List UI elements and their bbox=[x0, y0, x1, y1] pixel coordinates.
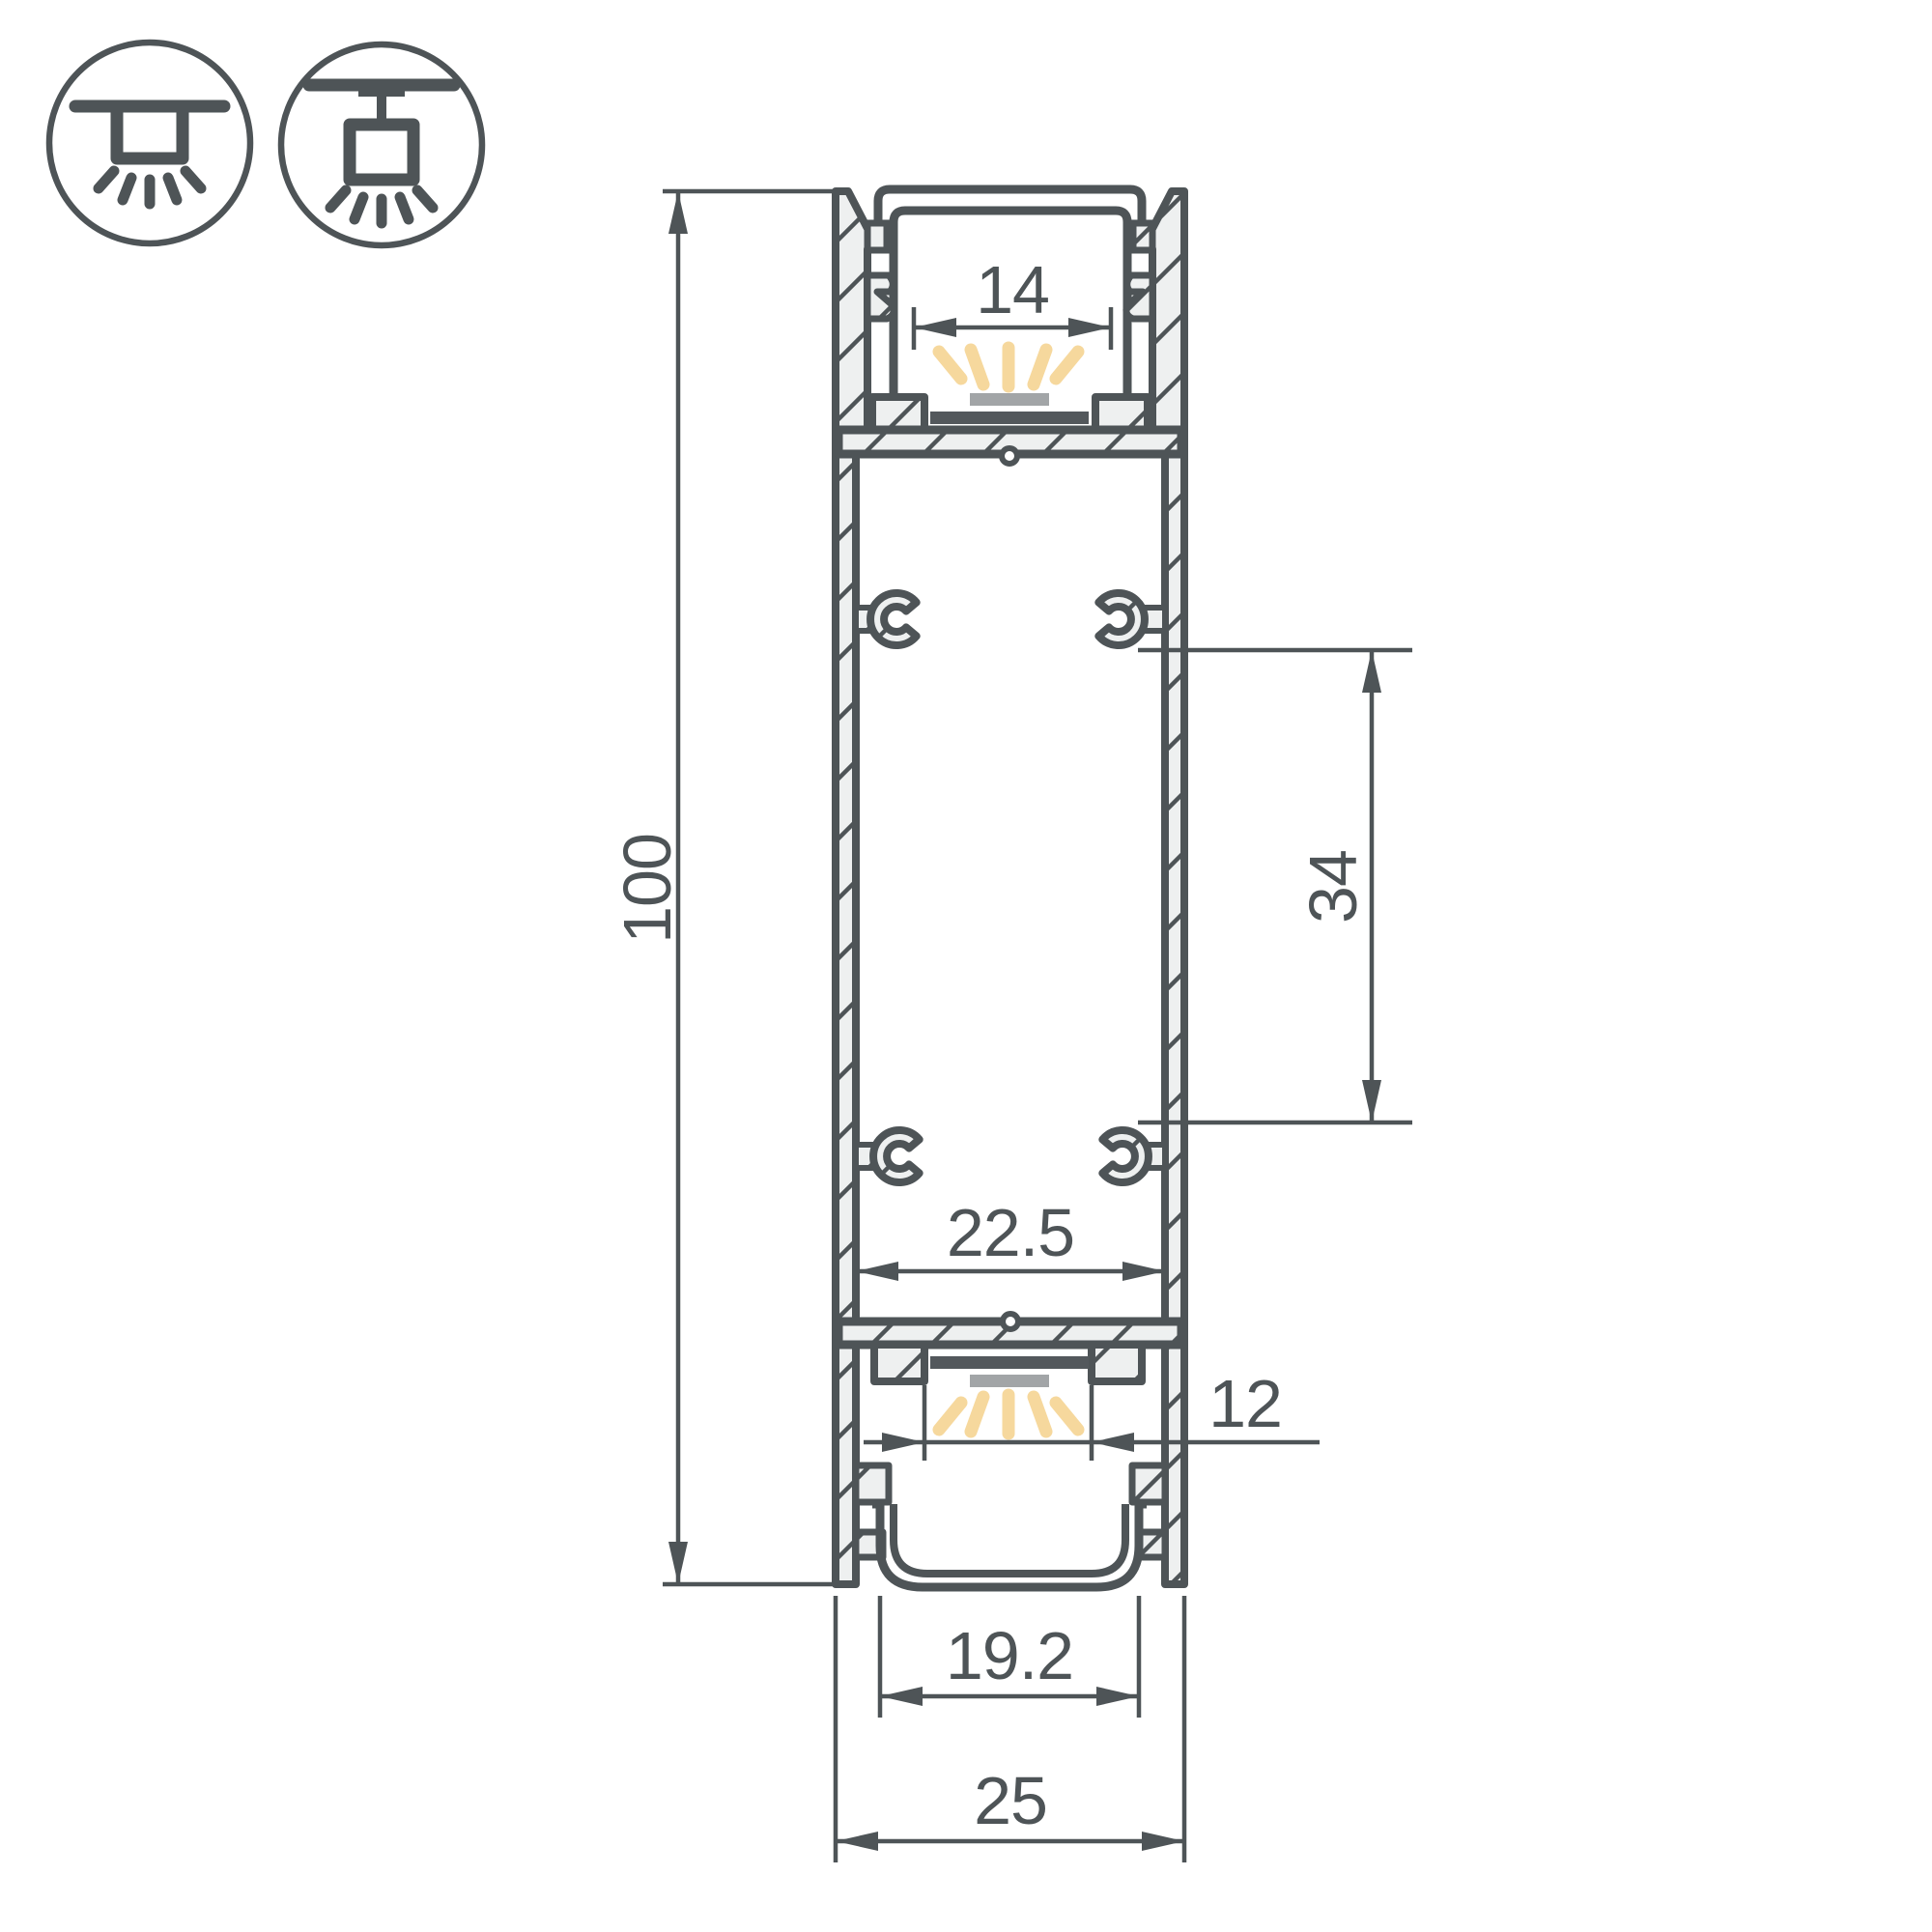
arrowhead-right bbox=[882, 1433, 924, 1452]
dim-clip-spacing-label: 34 bbox=[1295, 850, 1371, 923]
light-rays-bottom bbox=[939, 1395, 1078, 1434]
arrowhead-down bbox=[668, 1542, 688, 1584]
screw-clip-lower-right bbox=[1102, 1130, 1149, 1182]
dim-overall-height-label: 100 bbox=[610, 834, 685, 944]
diffuser-tray-inner bbox=[894, 1504, 1125, 1574]
led-strip-bottom bbox=[970, 1375, 1049, 1387]
partition-upper-notch bbox=[1002, 448, 1017, 464]
profile-technical-drawing: 100 14 34 22.5 bbox=[0, 0, 1932, 1932]
profile-cross-section bbox=[836, 189, 1184, 1587]
arrowhead-left bbox=[880, 1687, 923, 1706]
arrowhead-left bbox=[1092, 1433, 1134, 1452]
arrowhead-right bbox=[1096, 1687, 1139, 1706]
diffuser-tab-upper-right bbox=[1132, 1465, 1165, 1502]
screw-clip-upper-right bbox=[1098, 593, 1145, 645]
ceiling-bracket bbox=[358, 85, 405, 97]
partition-lower-notch bbox=[1003, 1314, 1018, 1329]
arrowhead-up bbox=[1362, 650, 1381, 693]
led-strip-top bbox=[970, 393, 1049, 406]
arrowhead-left bbox=[856, 1262, 898, 1281]
surface-mount-icon-circle bbox=[49, 43, 250, 243]
dim-overall-width-label: 25 bbox=[974, 1763, 1047, 1838]
diffuser-tab-upper-left bbox=[856, 1465, 889, 1502]
screw-clip-upper-left bbox=[870, 593, 917, 645]
dim-inner-width-label: 22.5 bbox=[947, 1195, 1074, 1270]
surface-mount-icon bbox=[49, 43, 250, 243]
pcb-strip-bottom bbox=[930, 1356, 1089, 1369]
cover-tab-left bbox=[867, 223, 887, 250]
dim-overall-height bbox=[663, 191, 833, 1584]
arrowhead-left bbox=[836, 1832, 878, 1851]
dim-bottom-led-label: 12 bbox=[1208, 1366, 1282, 1441]
arrowhead-right bbox=[1142, 1832, 1184, 1851]
arrowhead-down bbox=[1362, 1080, 1381, 1122]
dim-bottom-opening-label: 19.2 bbox=[946, 1618, 1073, 1693]
cover-tab-right bbox=[1133, 223, 1152, 250]
pendant-mount-icon bbox=[281, 44, 482, 245]
pcb-hook-bottom-left bbox=[874, 1345, 924, 1381]
drawing-canvas: 100 14 34 22.5 bbox=[0, 0, 1932, 1932]
dim-top-window-label: 14 bbox=[976, 252, 1049, 327]
screw-clips bbox=[856, 593, 1165, 1182]
pcb-hook-top-right bbox=[1095, 397, 1148, 430]
arrowhead-up bbox=[668, 191, 688, 234]
pcb-strip-top bbox=[930, 412, 1089, 424]
screw-clip-lower-left bbox=[873, 1130, 920, 1182]
pcb-hook-bottom-right bbox=[1092, 1345, 1142, 1381]
arrowhead-right bbox=[1122, 1262, 1165, 1281]
mount-icons bbox=[49, 43, 482, 245]
pcb-hook-top-left bbox=[872, 397, 924, 430]
